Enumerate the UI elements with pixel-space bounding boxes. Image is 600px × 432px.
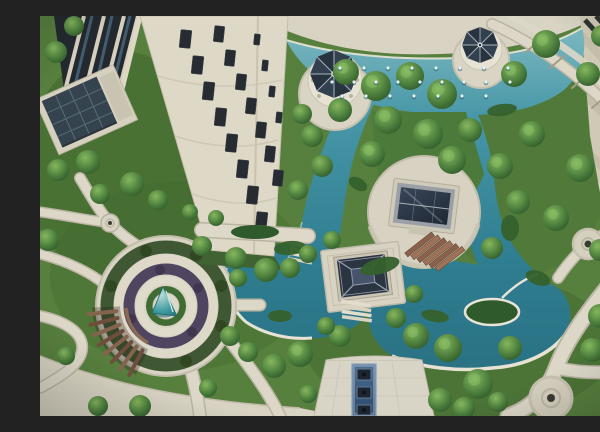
scene-canvas: Bird's-eye photograph of an apartment-co… (40, 16, 600, 416)
photo-vignette (40, 16, 600, 416)
aerial-courtyard-photo: Bird's-eye photograph of an apartment-co… (40, 16, 600, 416)
